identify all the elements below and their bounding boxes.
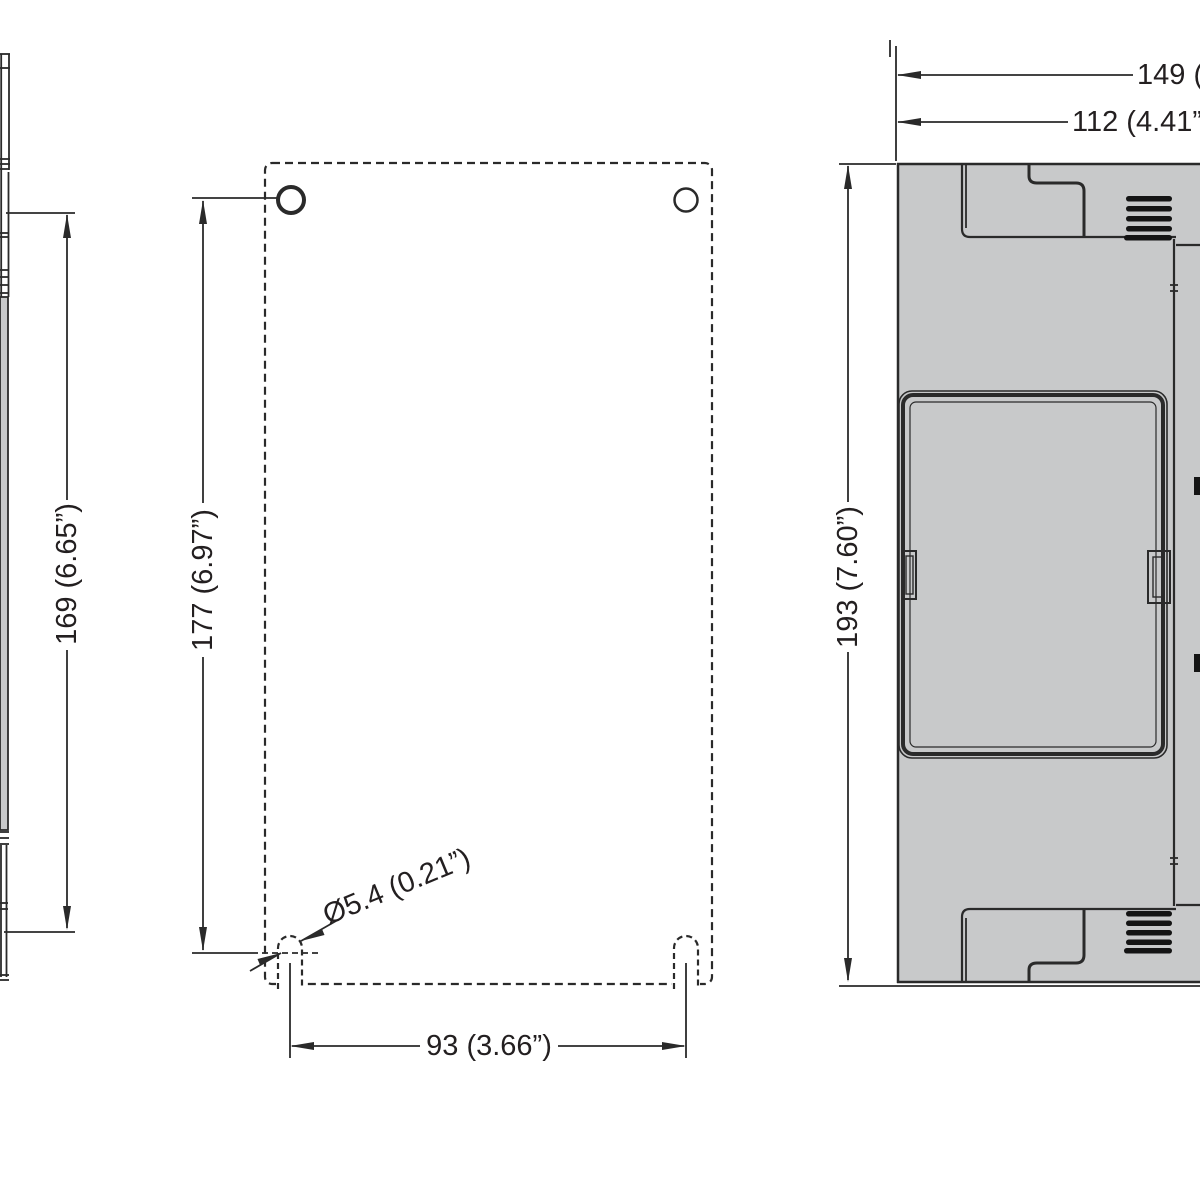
mounting-hole-left <box>278 187 304 213</box>
dim-177-label: 177 (6.97”) <box>187 509 219 651</box>
dim-slot-diameter: Ø5.4 (0.21”) <box>250 842 475 971</box>
dim-112: 112 (4.41”) <box>897 106 1200 138</box>
dim-149-label: 149 ( <box>1137 59 1200 91</box>
mounting-hole-right <box>675 189 698 212</box>
dim-112-label: 112 (4.41”) <box>1072 106 1200 138</box>
side-view <box>897 163 1200 983</box>
device-body <box>897 163 1200 983</box>
side-profile-view <box>0 54 10 980</box>
dim-93-label: 93 (3.66”) <box>426 1030 552 1062</box>
plate-outline <box>265 163 712 984</box>
mounting-plate-view <box>265 163 712 994</box>
dim-177: 177 (6.97”) <box>187 198 318 953</box>
dim-93: 93 (3.66”) <box>290 963 686 1062</box>
dim-193-label: 193 (7.60”) <box>832 506 864 648</box>
dim-149: 149 ( <box>890 40 1200 161</box>
dim-slot-diameter-label: Ø5.4 (0.21”) <box>318 842 475 931</box>
dim-169-label: 169 (6.65”) <box>51 503 83 645</box>
dimension-drawing: 169 (6.65”) 177 (6.97”) Ø5.4 (0.21”) <box>0 0 1200 1200</box>
profile-body-segment <box>0 297 8 830</box>
drawing-canvas: 169 (6.65”) 177 (6.97”) Ø5.4 (0.21”) <box>0 0 1200 1200</box>
dim-169: 169 (6.65”) <box>4 213 83 932</box>
